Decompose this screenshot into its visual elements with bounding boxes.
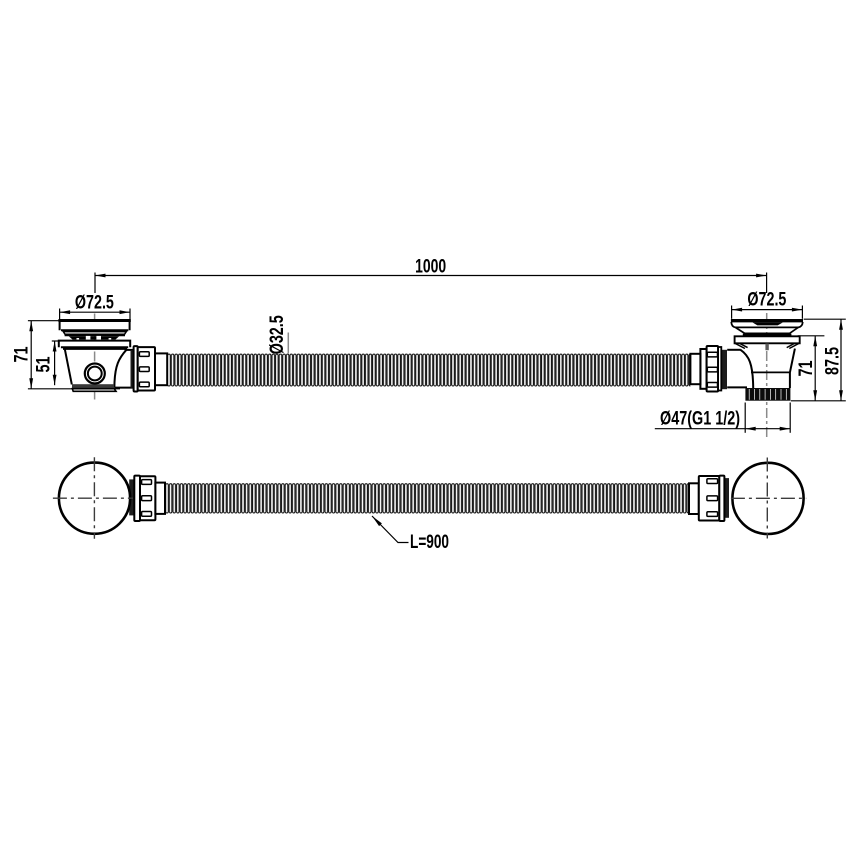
svg-text:Ø72.5: Ø72.5 [747,290,786,311]
svg-text:71: 71 [796,360,817,376]
svg-text:87.5: 87.5 [823,347,844,375]
svg-text:51: 51 [33,356,54,372]
svg-text:Ø72.5: Ø72.5 [75,293,114,314]
svg-text:Ø47(G1 1/2): Ø47(G1 1/2) [660,408,740,429]
svg-text:L=900: L=900 [410,532,449,553]
svg-text:1000: 1000 [415,257,446,278]
svg-text:71: 71 [12,346,33,362]
svg-text:Ø32.5: Ø32.5 [267,315,288,354]
